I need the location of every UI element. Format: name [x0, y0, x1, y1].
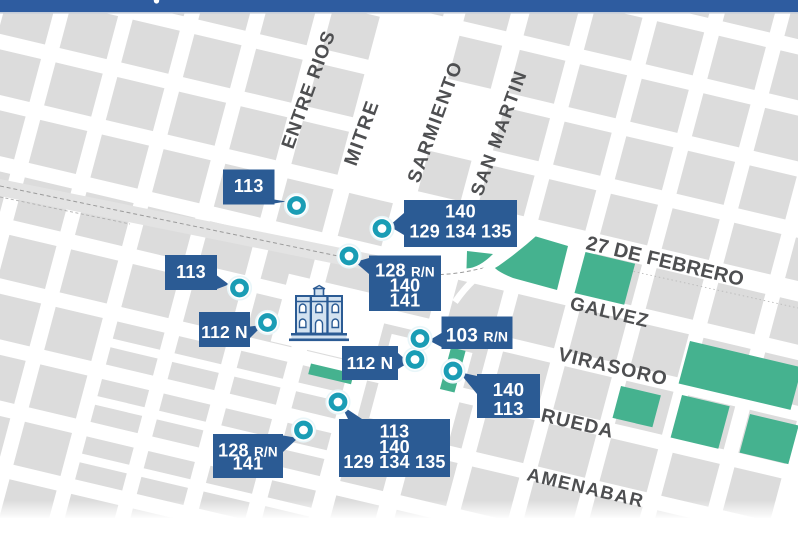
svg-text:112 N: 112 N	[201, 322, 248, 342]
svg-text:103 R/N: 103 R/N	[446, 326, 509, 347]
svg-text:140: 140	[493, 379, 524, 400]
svg-text:129 134 135: 129 134 135	[343, 452, 445, 472]
svg-text:113: 113	[234, 176, 264, 196]
svg-text:141: 141	[390, 291, 421, 311]
svg-text:112 N: 112 N	[347, 353, 394, 373]
svg-text:140: 140	[445, 202, 476, 222]
svg-text:129 134 135: 129 134 135	[409, 222, 511, 242]
svg-text:113: 113	[176, 262, 206, 282]
svg-text:113: 113	[493, 398, 523, 419]
svg-text:141: 141	[233, 454, 264, 474]
